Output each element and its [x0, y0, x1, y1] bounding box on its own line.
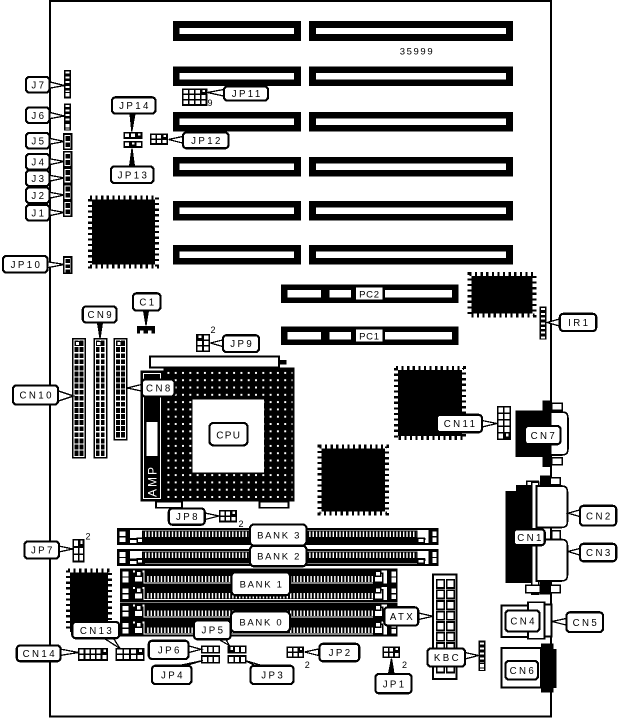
svg-text:CN13: CN13 [80, 626, 114, 637]
svg-text:AMP: AMP [146, 465, 160, 497]
svg-text:BANK 3: BANK 3 [257, 531, 301, 542]
svg-text:JP7: JP7 [31, 546, 55, 557]
svg-text:JP14: JP14 [119, 101, 151, 112]
svg-text:2: 2 [402, 660, 407, 670]
svg-text:JP11: JP11 [232, 89, 263, 100]
svg-text:CN7: CN7 [531, 431, 558, 442]
svg-text:CN11: CN11 [444, 419, 478, 430]
svg-text:BANK 1: BANK 1 [240, 579, 284, 590]
svg-text:CN4: CN4 [510, 617, 537, 628]
svg-text:CN6: CN6 [510, 666, 537, 677]
svg-text:BANK 2: BANK 2 [257, 552, 301, 563]
svg-text:JP9: JP9 [230, 339, 254, 350]
svg-text:J1: J1 [31, 208, 46, 219]
svg-text:CN10: CN10 [20, 391, 54, 402]
svg-text:CN5: CN5 [573, 618, 600, 629]
svg-text:J5: J5 [31, 136, 46, 147]
svg-text:ATX: ATX [390, 612, 415, 623]
svg-text:J3: J3 [31, 174, 46, 185]
svg-text:JP12: JP12 [191, 136, 223, 147]
svg-text:CN2: CN2 [586, 511, 613, 522]
svg-text:J4: J4 [31, 157, 46, 168]
svg-text:JP8: JP8 [176, 512, 200, 523]
svg-text:2: 2 [211, 325, 216, 335]
svg-text:JP6: JP6 [158, 645, 182, 656]
svg-text:2: 2 [86, 532, 91, 542]
svg-text:CPU: CPU [216, 430, 241, 441]
svg-text:BANK 0: BANK 0 [239, 617, 283, 628]
svg-text:JP1: JP1 [383, 679, 407, 690]
svg-text:IR1: IR1 [568, 318, 590, 329]
svg-text:PC1: PC1 [359, 331, 380, 342]
svg-text:CN3: CN3 [586, 548, 613, 559]
svg-text:CN14: CN14 [23, 649, 57, 660]
svg-text:JP5: JP5 [201, 625, 225, 636]
svg-text:9: 9 [208, 98, 213, 108]
svg-text:J2: J2 [31, 191, 46, 202]
svg-text:CN9: CN9 [88, 310, 115, 321]
svg-text:JP10: JP10 [11, 260, 43, 271]
svg-text:C1: C1 [139, 298, 156, 309]
svg-text:35999: 35999 [400, 47, 434, 58]
svg-text:2: 2 [239, 519, 244, 529]
svg-text:CN8: CN8 [146, 384, 173, 395]
svg-text:J6: J6 [31, 111, 46, 122]
svg-text:2: 2 [305, 660, 310, 670]
svg-text:CN1: CN1 [517, 533, 544, 544]
svg-text:JP13: JP13 [118, 170, 150, 181]
svg-text:JP4: JP4 [161, 670, 185, 681]
svg-text:JP3: JP3 [261, 670, 285, 681]
svg-text:PC2: PC2 [359, 289, 380, 300]
svg-text:J7: J7 [31, 80, 46, 91]
svg-text:JP2: JP2 [329, 648, 353, 659]
svg-text:KBC: KBC [434, 653, 461, 664]
